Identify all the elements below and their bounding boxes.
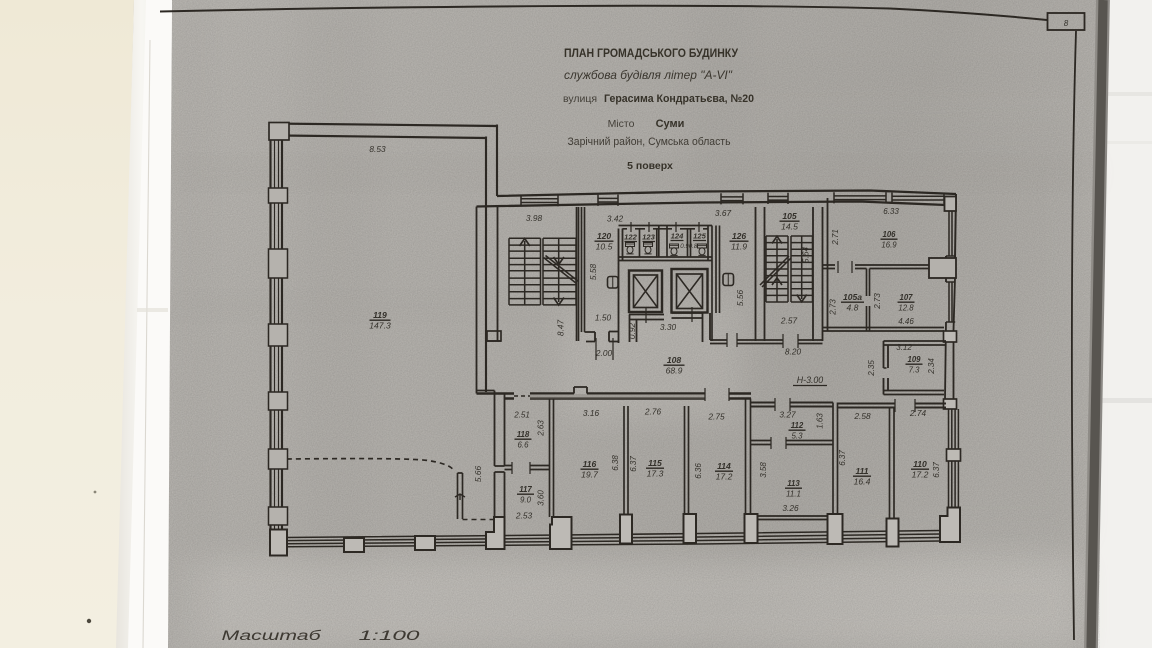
svg-text:2.75: 2.75 <box>707 412 725 422</box>
svg-text:17.2: 17.2 <box>716 472 733 482</box>
svg-text:7.3: 7.3 <box>909 366 921 375</box>
svg-text:105а: 105а <box>843 292 862 302</box>
svg-text:17.3: 17.3 <box>647 469 664 479</box>
svg-text:8: 8 <box>1064 19 1069 28</box>
svg-text:2.74: 2.74 <box>909 408 927 418</box>
svg-text:3.60: 3.60 <box>537 490 546 506</box>
svg-text:120: 120 <box>597 231 612 241</box>
svg-text:112: 112 <box>791 421 804 430</box>
svg-text:2.73: 2.73 <box>829 299 838 316</box>
svg-text:5.58: 5.58 <box>588 264 598 281</box>
svg-text:3.30: 3.30 <box>660 322 677 332</box>
svg-text:17.2: 17.2 <box>912 470 929 480</box>
svg-text:Зарічний район, Сумська област: Зарічний район, Сумська область <box>568 136 731 148</box>
svg-text:2.57: 2.57 <box>780 316 798 326</box>
svg-text:2.73: 2.73 <box>873 293 882 310</box>
svg-text:6.38: 6.38 <box>611 455 620 471</box>
svg-text:11.9: 11.9 <box>731 242 747 252</box>
svg-text:8.20: 8.20 <box>785 347 802 357</box>
svg-text:110: 110 <box>913 459 927 469</box>
svg-text:Масштаб: Масштаб <box>222 628 322 643</box>
svg-text:Суми: Суми <box>656 118 685 130</box>
svg-text:0.8: 0.8 <box>689 243 698 250</box>
svg-text:2.63: 2.63 <box>537 420 546 437</box>
svg-text:16.9: 16.9 <box>881 241 897 250</box>
svg-text:Н-3.00: Н-3.00 <box>797 375 824 385</box>
svg-text:8.47: 8.47 <box>556 320 566 337</box>
svg-text:68.9: 68.9 <box>666 366 683 376</box>
svg-text:16.4: 16.4 <box>854 477 871 487</box>
svg-text:6.37: 6.37 <box>629 456 638 472</box>
svg-text:2.71: 2.71 <box>831 229 840 246</box>
svg-text:11.1: 11.1 <box>786 490 801 499</box>
svg-text:109: 109 <box>907 355 921 364</box>
svg-text:10.5: 10.5 <box>596 242 613 252</box>
svg-text:6.37: 6.37 <box>838 450 847 466</box>
svg-text:123: 123 <box>642 233 655 242</box>
svg-text:122: 122 <box>624 233 637 242</box>
svg-text:1:100: 1:100 <box>359 628 421 643</box>
svg-text:2.35: 2.35 <box>867 360 876 377</box>
svg-text:111: 111 <box>855 466 868 476</box>
svg-text:118: 118 <box>517 430 530 439</box>
svg-text:2.76: 2.76 <box>644 407 662 417</box>
svg-text:службова будівля літер "А-VI": службова будівля літер "А-VI" <box>564 68 733 82</box>
svg-text:5 поверх: 5 поверх <box>627 160 673 172</box>
svg-text:124: 124 <box>671 232 684 241</box>
svg-text:6.37: 6.37 <box>932 462 941 478</box>
svg-text:9.0: 9.0 <box>520 496 532 505</box>
svg-text:0.92: 0.92 <box>627 323 637 340</box>
svg-text:114: 114 <box>717 461 731 471</box>
svg-text:3.26: 3.26 <box>782 503 799 513</box>
svg-text:2.51: 2.51 <box>513 411 530 420</box>
svg-text:5.56: 5.56 <box>735 290 745 307</box>
svg-text:6.6: 6.6 <box>518 441 530 450</box>
svg-text:2.58: 2.58 <box>853 411 871 421</box>
svg-text:12.8: 12.8 <box>898 304 914 313</box>
svg-text:5.3: 5.3 <box>792 432 804 441</box>
svg-text:107: 107 <box>899 293 913 302</box>
svg-text:6.36: 6.36 <box>694 463 703 479</box>
svg-text:116: 116 <box>583 459 597 469</box>
svg-text:126: 126 <box>732 231 747 241</box>
svg-text:113: 113 <box>787 479 800 488</box>
svg-text:19.7: 19.7 <box>581 470 599 480</box>
svg-text:3.98: 3.98 <box>526 213 543 223</box>
svg-text:5.66: 5.66 <box>473 466 483 483</box>
svg-text:2.34: 2.34 <box>927 358 936 375</box>
svg-text:4.46: 4.46 <box>898 317 914 326</box>
svg-text:106: 106 <box>882 230 896 239</box>
svg-text:3.67: 3.67 <box>715 208 732 218</box>
svg-text:115: 115 <box>648 458 662 468</box>
svg-text:125: 125 <box>693 232 706 241</box>
svg-text:2.53: 2.53 <box>515 511 533 521</box>
svg-text:3.58: 3.58 <box>759 462 768 478</box>
svg-text:Герасима Кондратьєва, №20: Герасима Кондратьєва, №20 <box>604 93 754 105</box>
svg-text:Місто: Місто <box>608 118 635 130</box>
svg-text:119: 119 <box>373 310 387 320</box>
svg-text:4.8: 4.8 <box>847 303 859 313</box>
svg-text:14.5: 14.5 <box>781 222 798 232</box>
svg-text:вулиця: вулиця <box>563 93 597 105</box>
svg-text:2.00: 2.00 <box>595 348 613 358</box>
svg-text:6.33: 6.33 <box>883 207 899 216</box>
svg-text:147.3: 147.3 <box>369 321 391 331</box>
svg-text:1.50: 1.50 <box>595 313 612 323</box>
svg-text:3.27: 3.27 <box>779 410 796 420</box>
svg-text:8.53: 8.53 <box>369 144 386 154</box>
svg-text:ПЛАН ГРОМАДСЬКОГО БУДИНКУ: ПЛАН ГРОМАДСЬКОГО БУДИНКУ <box>564 46 738 60</box>
svg-text:108: 108 <box>667 355 682 365</box>
svg-text:1.63: 1.63 <box>816 413 825 429</box>
svg-text:3.42: 3.42 <box>607 214 624 224</box>
svg-text:117: 117 <box>519 485 532 494</box>
svg-text:3.16: 3.16 <box>583 408 600 418</box>
svg-text:105: 105 <box>782 211 797 221</box>
